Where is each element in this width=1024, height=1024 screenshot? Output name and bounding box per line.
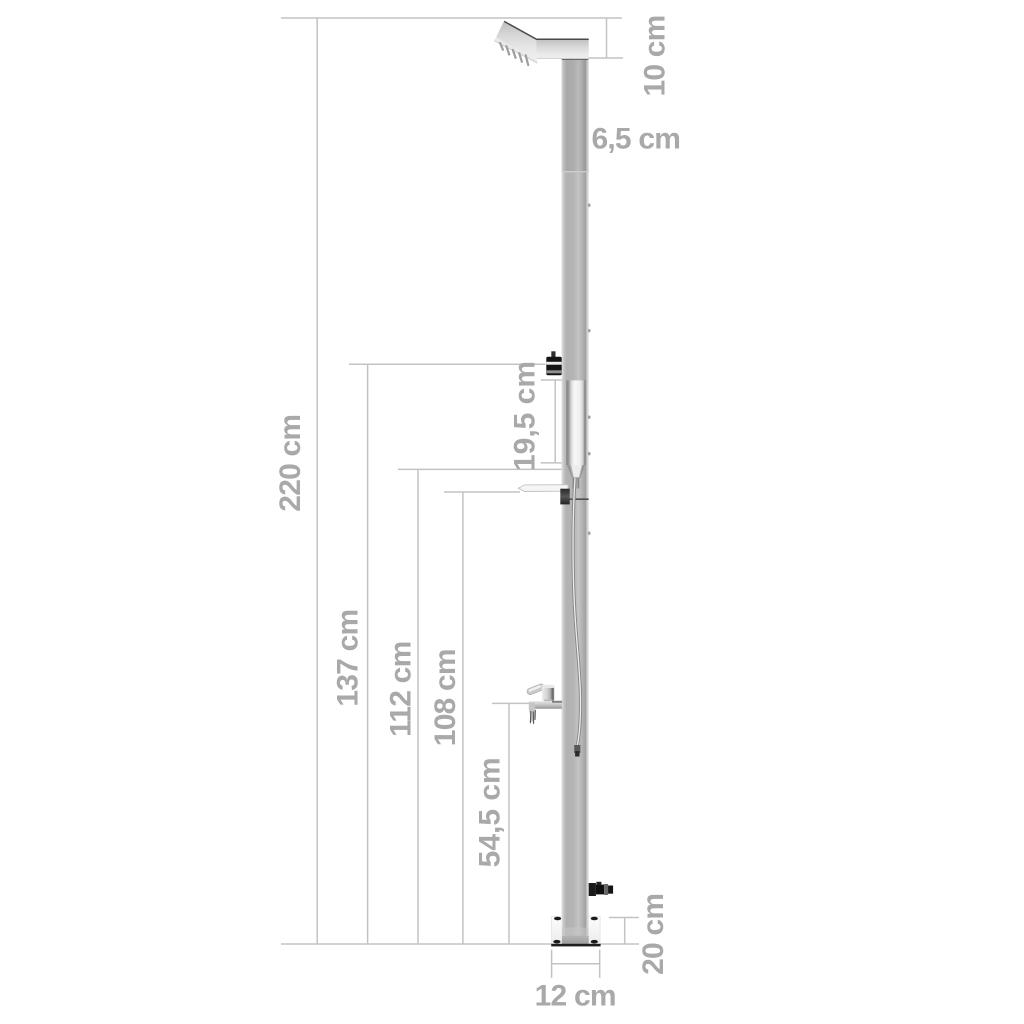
svg-text:108 cm: 108 cm (429, 649, 462, 746)
svg-text:112 cm: 112 cm (385, 642, 418, 737)
svg-text:10 cm: 10 cm (639, 15, 672, 96)
svg-text:19,5 cm: 19,5 cm (508, 361, 541, 471)
svg-text:220 cm: 220 cm (274, 415, 307, 512)
svg-text:54,5 cm: 54,5 cm (474, 757, 507, 867)
svg-text:137 cm: 137 cm (331, 610, 364, 707)
svg-text:12 cm: 12 cm (535, 980, 616, 1013)
svg-text:6,5 cm: 6,5 cm (591, 122, 680, 155)
svg-text:20 cm: 20 cm (637, 894, 670, 975)
